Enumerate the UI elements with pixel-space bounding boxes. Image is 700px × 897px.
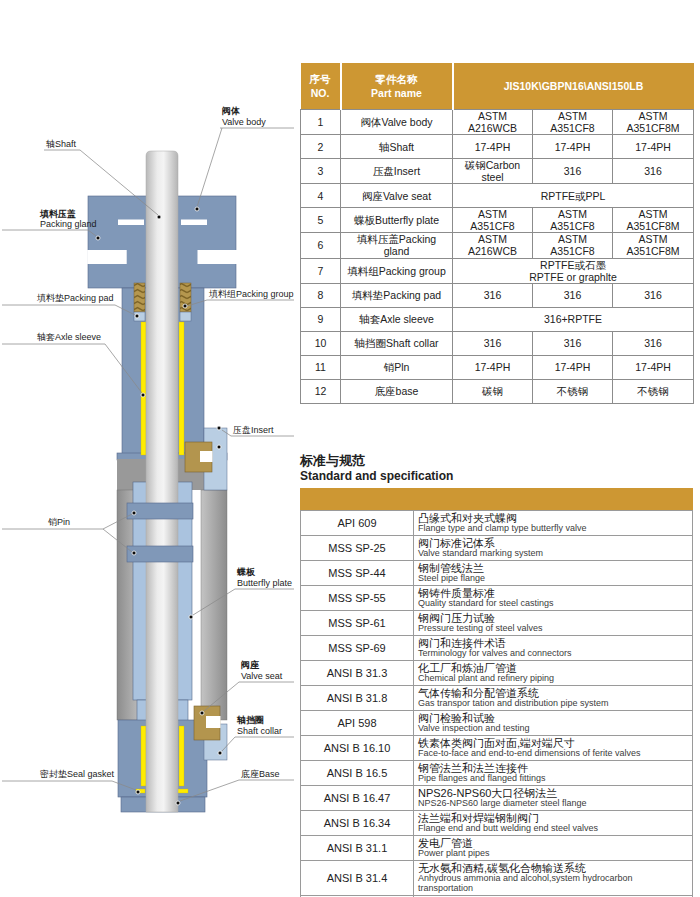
standard-description-en: Quality standard for steel castings bbox=[418, 599, 688, 609]
table-row: API 609凸缘式和对夹式蝶阀Flange type and clamp ty… bbox=[301, 511, 693, 536]
part-no: 8 bbox=[301, 283, 341, 307]
table-row: MSS SP-61钢阀门压力试验Pressure testing of stee… bbox=[301, 610, 693, 635]
part-name: 蝶板Butterfly plate bbox=[341, 208, 453, 233]
part-material: 17-4PH bbox=[453, 355, 533, 379]
standard-code: ANSI B 16.5 bbox=[301, 760, 414, 785]
parts-table-body: 1阀体Valve bodyASTM A216WCBASTM A351CF8AST… bbox=[301, 110, 694, 404]
table-row: 12底座base碳钢不锈钢不锈钢 bbox=[301, 379, 694, 403]
part-material: ASTM A351CF8M bbox=[613, 233, 694, 258]
svg-text:轴套Axle sleeve: 轴套Axle sleeve bbox=[37, 332, 101, 342]
label-shaft-collar: 轴挡圈 Shaft collar bbox=[218, 715, 294, 755]
label-packing-gland: 填料压盖 Packing gland bbox=[2, 208, 100, 240]
part-material: 316+RPTFE bbox=[453, 307, 694, 331]
svg-text:Valve body: Valve body bbox=[222, 117, 266, 127]
label-insert: 压盘Insert bbox=[217, 425, 294, 449]
insert-part bbox=[185, 442, 213, 472]
table-row: API 598阀门检验和试验Valve inspection and testi… bbox=[301, 710, 693, 735]
table-row: MSS SP-55钢铸件质量标准Quality standard for ste… bbox=[301, 585, 693, 610]
svg-text:填料压盖: 填料压盖 bbox=[39, 208, 76, 219]
part-material: 17-4PH bbox=[453, 135, 533, 159]
part-no: 12 bbox=[301, 379, 341, 403]
svg-text:Packing gland: Packing gland bbox=[40, 219, 97, 229]
standard-description: 钢制管线法兰Steel pipe flange bbox=[414, 560, 693, 585]
standard-code: ANSI B 16.10 bbox=[301, 735, 414, 760]
svg-text:阀体: 阀体 bbox=[222, 106, 240, 116]
part-no: 4 bbox=[301, 184, 341, 208]
part-material: 316 bbox=[533, 159, 613, 184]
part-no: 5 bbox=[301, 208, 341, 233]
valve-cross-section-diagram: 轴Shaft 阀体 Valve body 填料压盖 Packing gland … bbox=[0, 0, 300, 897]
part-material: 316 bbox=[453, 331, 533, 355]
table-row: 11销Pln17-4PH17-4PH17-4PH bbox=[301, 355, 694, 379]
header-no: 序号 NO. bbox=[301, 63, 341, 110]
part-material: ASTM A216WCB bbox=[453, 233, 533, 258]
svg-text:底座Base: 底座Base bbox=[241, 769, 280, 779]
svg-text:密封垫Seal gasket: 密封垫Seal gasket bbox=[40, 769, 115, 779]
part-material: 316 bbox=[533, 283, 613, 307]
standard-description: 气体传输和分配管道系统Gas transpor tation and distr… bbox=[414, 685, 693, 710]
parts-table-header: 序号 NO. 零件名称 Part name JIS10K\GBPN16\ANSI… bbox=[301, 63, 694, 110]
part-material: ASTM A216WCB bbox=[453, 110, 533, 135]
standards-gold-band bbox=[300, 488, 693, 510]
part-material: RPTFE或PPL bbox=[453, 184, 694, 208]
standard-description-en: Flange end and butt welding end steel va… bbox=[418, 824, 688, 834]
part-material: ASTM A351CF8 bbox=[533, 110, 613, 135]
part-no: 1 bbox=[301, 110, 341, 135]
standard-code: ANSI B 31.3 bbox=[301, 660, 414, 685]
table-row: ANSI B 16.34法兰端和对焊端钢制阀门Flange end and bu… bbox=[301, 810, 693, 835]
table-row: ANSI B 16.47NPS26-NPS60大口径钢法兰NPS26-NPS60… bbox=[301, 785, 693, 810]
part-name: 填料组Packing group bbox=[341, 258, 453, 283]
part-name: 轴挡圈Shaft collar bbox=[341, 331, 453, 355]
standard-code: MSS SP-55 bbox=[301, 585, 414, 610]
shaft-part bbox=[146, 151, 178, 812]
standard-description-en: Gas transpor tation and distribution pip… bbox=[418, 699, 688, 709]
standard-code: ANSI B 16.47 bbox=[301, 785, 414, 810]
standard-description: 铁素体类阀门面对面,端对端尺寸Face-to-face and end-to-e… bbox=[414, 735, 693, 760]
part-name: 轴Shaft bbox=[341, 135, 453, 159]
table-row: 6填料压盖Packing glandASTM A216WCBASTM A351C… bbox=[301, 233, 694, 258]
standard-description-en: NPS26-NPS60 large diameter steel flange bbox=[418, 799, 688, 809]
standards-title-en: Standard and specification bbox=[300, 469, 453, 483]
table-row: 1阀体Valve bodyASTM A216WCBASTM A351CF8AST… bbox=[301, 110, 694, 135]
part-material: 316 bbox=[613, 283, 694, 307]
part-name: 销Pln bbox=[341, 355, 453, 379]
standard-description: NPS26-NPS60大口径钢法兰NPS26-NPS60 large diame… bbox=[414, 785, 693, 810]
label-pin: 销Pin bbox=[2, 511, 136, 555]
table-row: 8填料垫Packing pad316316316 bbox=[301, 283, 694, 307]
part-material: 17-4PH bbox=[613, 135, 694, 159]
label-valve-body: 阀体 Valve body bbox=[195, 106, 294, 211]
standard-code: ANSI B 16.34 bbox=[301, 810, 414, 835]
part-name: 填料垫Packing pad bbox=[341, 283, 453, 307]
part-material: 17-4PH bbox=[613, 355, 694, 379]
standard-code: MSS SP-61 bbox=[301, 610, 414, 635]
standard-description-en: Chemical plant and refinery piping bbox=[418, 674, 688, 684]
standards-table: API 609凸缘式和对夹式蝶阀Flange type and clamp ty… bbox=[300, 510, 693, 897]
svg-text:填料组Packing group: 填料组Packing group bbox=[208, 289, 294, 299]
part-no: 10 bbox=[301, 331, 341, 355]
label-packing-pad: 填料垫Packing pad bbox=[2, 293, 139, 318]
svg-text:填料垫Packing pad: 填料垫Packing pad bbox=[36, 293, 114, 303]
standards-title-zh: 标准与规范 bbox=[300, 454, 365, 468]
part-no: 7 bbox=[301, 258, 341, 283]
standard-description: 阀门标准记体系Valve standard marking system bbox=[414, 535, 693, 560]
table-row: MSS SP-69阀门和连接件术语Terminology for valves … bbox=[301, 635, 693, 660]
standard-description: 法兰端和对焊端钢制阀门Flange end and butt welding e… bbox=[414, 810, 693, 835]
part-material: 不锈钢 bbox=[613, 379, 694, 403]
part-name: 阀体Valve body bbox=[341, 110, 453, 135]
part-no: 2 bbox=[301, 135, 341, 159]
standard-description: 化工厂和炼油厂管道Chemical plant and refinery pip… bbox=[414, 660, 693, 685]
svg-text:轴Shaft: 轴Shaft bbox=[46, 139, 77, 149]
standard-description: 凸缘式和对夹式蝶阀Flange type and clamp type butt… bbox=[414, 511, 693, 536]
standard-code: API 609 bbox=[301, 511, 414, 536]
part-material: ASTM A351CF8M bbox=[613, 110, 694, 135]
standard-description-en: Steel pipe flange bbox=[418, 574, 688, 584]
table-row: 4阀座Valve seatRPTFE或PPL bbox=[301, 184, 694, 208]
standard-description-en: Pipe flanges and flanged fittings bbox=[418, 774, 688, 784]
part-material: ASTM A351CF8 bbox=[453, 208, 533, 233]
table-header-row: 序号 NO. 零件名称 Part name JIS10K\GBPN16\ANSI… bbox=[301, 63, 694, 110]
part-material: ASTM A351CF8 bbox=[533, 233, 613, 258]
page: { "colors":{"gold":"#CD9733","body_blue"… bbox=[0, 0, 700, 897]
part-material: 316 bbox=[613, 331, 694, 355]
standards-table-body: API 609凸缘式和对夹式蝶阀Flange type and clamp ty… bbox=[301, 511, 693, 897]
standard-code: ANSI B 31.8 bbox=[301, 685, 414, 710]
standard-description-en: Flange type and clamp type butterfly val… bbox=[418, 524, 688, 534]
standard-code: ANSI B 31.1 bbox=[301, 835, 414, 860]
part-no: 9 bbox=[301, 307, 341, 331]
svg-text:Butterfly plate: Butterfly plate bbox=[237, 578, 292, 588]
standard-description-en: Power plant pipes bbox=[418, 849, 688, 859]
table-row: 3压盘Insert碳钢Carbon steel316316 bbox=[301, 159, 694, 184]
standard-description: 发电厂管道Power plant pipes bbox=[414, 835, 693, 860]
standard-code: API 598 bbox=[301, 710, 414, 735]
header-materials: JIS10K\GBPN16\ANSI150LB bbox=[453, 63, 694, 110]
standard-description-en: Pressure testing of steel valves bbox=[418, 624, 688, 634]
standard-description: 钢阀门压力试验Pressure testing of steel valves bbox=[414, 610, 693, 635]
part-material: 不锈钢 bbox=[533, 379, 613, 403]
part-no: 6 bbox=[301, 233, 341, 258]
table-row: ANSI B 31.3化工厂和炼油厂管道Chemical plant and r… bbox=[301, 660, 693, 685]
svg-text:销Pin: 销Pin bbox=[48, 517, 70, 527]
table-row: ANSI B 31.8气体传输和分配管道系统Gas transpor tatio… bbox=[301, 685, 693, 710]
part-no: 11 bbox=[301, 355, 341, 379]
standard-description-en: Terminology for valves and connectors bbox=[418, 649, 688, 659]
part-material: 316 bbox=[533, 331, 613, 355]
table-row: 2轴Shaft17-4PH17-4PH17-4PH bbox=[301, 135, 694, 159]
table-row: ANSI B 31.1发电厂管道Power plant pipes bbox=[301, 835, 693, 860]
svg-text:Shaft collar: Shaft collar bbox=[237, 726, 282, 736]
part-name: 压盘Insert bbox=[341, 159, 453, 184]
header-part-name: 零件名称 Part name bbox=[341, 63, 453, 110]
standard-description: 钢管法兰和法兰连接件Pipe flanges and flanged fitti… bbox=[414, 760, 693, 785]
standard-code: MSS SP-44 bbox=[301, 560, 414, 585]
svg-text:阀座: 阀座 bbox=[241, 660, 260, 670]
standard-description: 无水氨和酒精,碳氢化合物输送系统Anhydrous ammonia and al… bbox=[414, 860, 693, 895]
part-name: 填料压盖Packing gland bbox=[341, 233, 453, 258]
svg-text:压盘Insert: 压盘Insert bbox=[233, 425, 274, 435]
part-material: 17-4PH bbox=[533, 135, 613, 159]
table-row: MSS SP-44钢制管线法兰Steel pipe flange bbox=[301, 560, 693, 585]
part-material: 316 bbox=[613, 159, 694, 184]
part-no: 3 bbox=[301, 159, 341, 184]
table-row: 9轴套Axle sleeve316+RPTFE bbox=[301, 307, 694, 331]
part-material: RPTFE或石墨 RPTFE or graphlte bbox=[453, 258, 694, 283]
table-row: ANSI B 16.5钢管法兰和法兰连接件Pipe flanges and fl… bbox=[301, 760, 693, 785]
part-name: 底座base bbox=[341, 379, 453, 403]
table-row: ANSI B 16.10铁素体类阀门面对面,端对端尺寸Face-to-face … bbox=[301, 735, 693, 760]
part-material: 碳钢 bbox=[453, 379, 533, 403]
table-row: 7填料组Packing groupRPTFE或石墨 RPTFE or graph… bbox=[301, 258, 694, 283]
part-name: 阀座Valve seat bbox=[341, 184, 453, 208]
part-material: ASTM A351CF8 bbox=[533, 208, 613, 233]
svg-text:轴挡圈: 轴挡圈 bbox=[236, 715, 264, 725]
standard-description: 阀门检验和试验Valve inspection and testing bbox=[414, 710, 693, 735]
part-material: 17-4PH bbox=[533, 355, 613, 379]
part-material: 316 bbox=[453, 283, 533, 307]
standard-code: MSS SP-25 bbox=[301, 535, 414, 560]
svg-text:Valve seat: Valve seat bbox=[241, 671, 283, 681]
part-material: ASTM A351CF8M bbox=[613, 208, 694, 233]
standard-description-en: Anhydrous ammonia and alcohol,system hyd… bbox=[418, 874, 688, 894]
part-name: 轴套Axle sleeve bbox=[341, 307, 453, 331]
standard-description-en: Face-to-face and end-to-end dimensions o… bbox=[418, 749, 688, 759]
parts-materials-table: 序号 NO. 零件名称 Part name JIS10K\GBPN16\ANSI… bbox=[300, 63, 694, 404]
table-row: MSS SP-25阀门标准记体系Valve standard marking s… bbox=[301, 535, 693, 560]
standard-code: MSS SP-69 bbox=[301, 635, 414, 660]
table-row: ANSI B 31.4无水氨和酒精,碳氢化合物输送系统Anhydrous amm… bbox=[301, 860, 693, 895]
svg-text:蝶板: 蝶板 bbox=[236, 567, 256, 577]
valve-seat-part bbox=[194, 706, 221, 740]
standard-description-en: Valve standard marking system bbox=[418, 549, 688, 559]
standard-code: ANSI B 31.4 bbox=[301, 860, 414, 895]
standard-description: 钢铸件质量标准Quality standard for steel castin… bbox=[414, 585, 693, 610]
table-row: 5蝶板Butterfly plateASTM A351CF8ASTM A351C… bbox=[301, 208, 694, 233]
table-row: 10轴挡圈Shaft collar316316316 bbox=[301, 331, 694, 355]
standard-description-en: Valve inspection and testing bbox=[418, 724, 688, 734]
standard-description: 阀门和连接件术语Terminology for valves and conne… bbox=[414, 635, 693, 660]
part-material: 碳钢Carbon steel bbox=[453, 159, 533, 184]
